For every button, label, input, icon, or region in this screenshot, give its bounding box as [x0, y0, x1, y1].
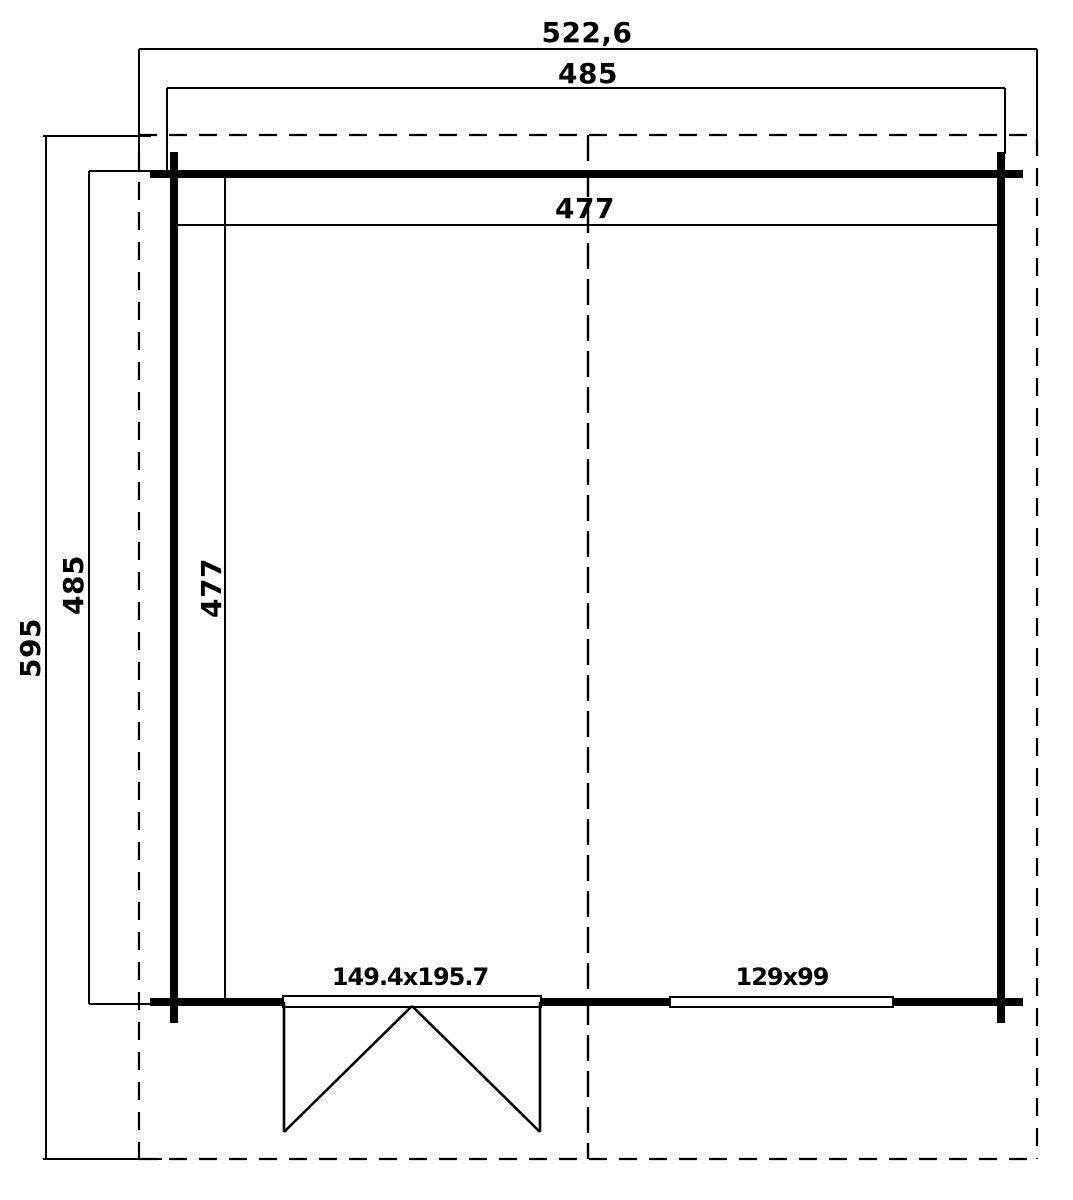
door-left-leaf	[284, 1006, 412, 1132]
dimension-label-overall-width: 522,6	[541, 19, 632, 47]
dimension-label-inner-width: 477	[555, 195, 615, 223]
dimension-label-outer-depth: 485	[60, 555, 88, 615]
window-opening	[670, 997, 893, 1007]
door-right-leaf	[412, 1006, 540, 1132]
floor-plan-page: 522,6 485 477 595 485 477 149.4x195.7 12…	[0, 0, 1073, 1200]
dimension-label-inner-depth: 477	[198, 558, 226, 618]
dimension-label-window-size: 129x99	[736, 965, 829, 989]
dimension-label-overall-depth: 595	[17, 618, 45, 678]
door-sill	[283, 996, 541, 1007]
floor-plan-drawing	[0, 0, 1073, 1200]
dimension-label-outer-width: 485	[558, 60, 618, 88]
dimension-label-door-size: 149.4x195.7	[332, 965, 488, 989]
